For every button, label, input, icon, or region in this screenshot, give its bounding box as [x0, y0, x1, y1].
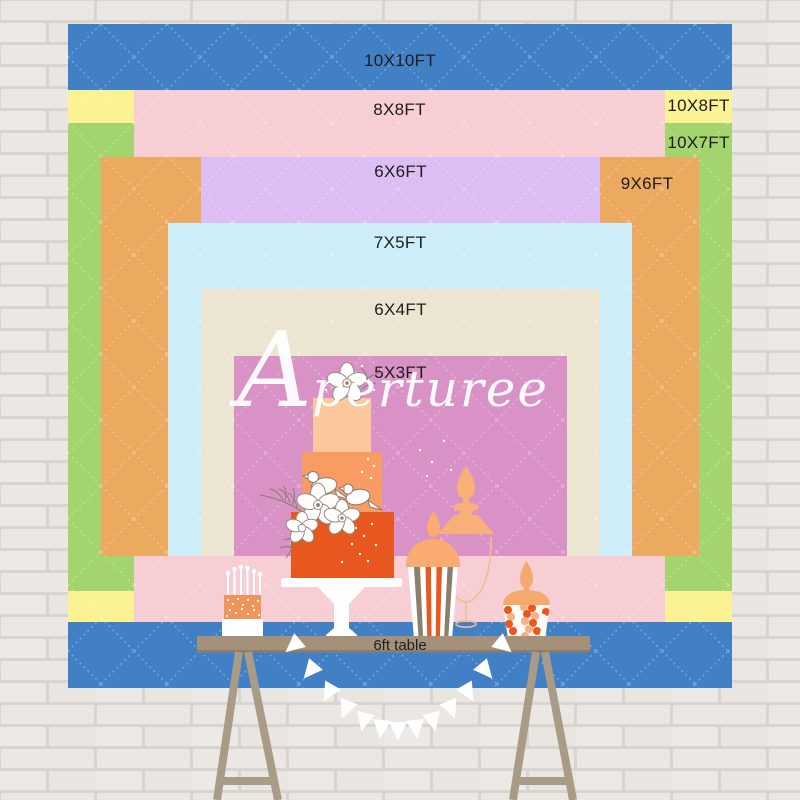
size-label-10x10ft: 10X10FT — [68, 51, 732, 71]
size-label-6x6ft: 6X6FT — [201, 162, 600, 182]
size-label-7x5ft: 7X5FT — [168, 233, 632, 253]
size-label-9x6ft: 9X6FT — [607, 174, 687, 194]
size-label-10x7ft: 10X7FT — [665, 133, 732, 153]
size-label-8x8ft: 8X8FT — [134, 100, 665, 120]
size-label-10x8ft: 10X8FT — [665, 96, 732, 116]
product-photo: 10X10FT 10X8FT 10X7FT 8X8FT 9X6FT 6X6FT … — [0, 0, 800, 800]
brand-watermark: Aperturee — [237, 322, 549, 437]
table-size-label: 6ft table — [320, 637, 480, 654]
